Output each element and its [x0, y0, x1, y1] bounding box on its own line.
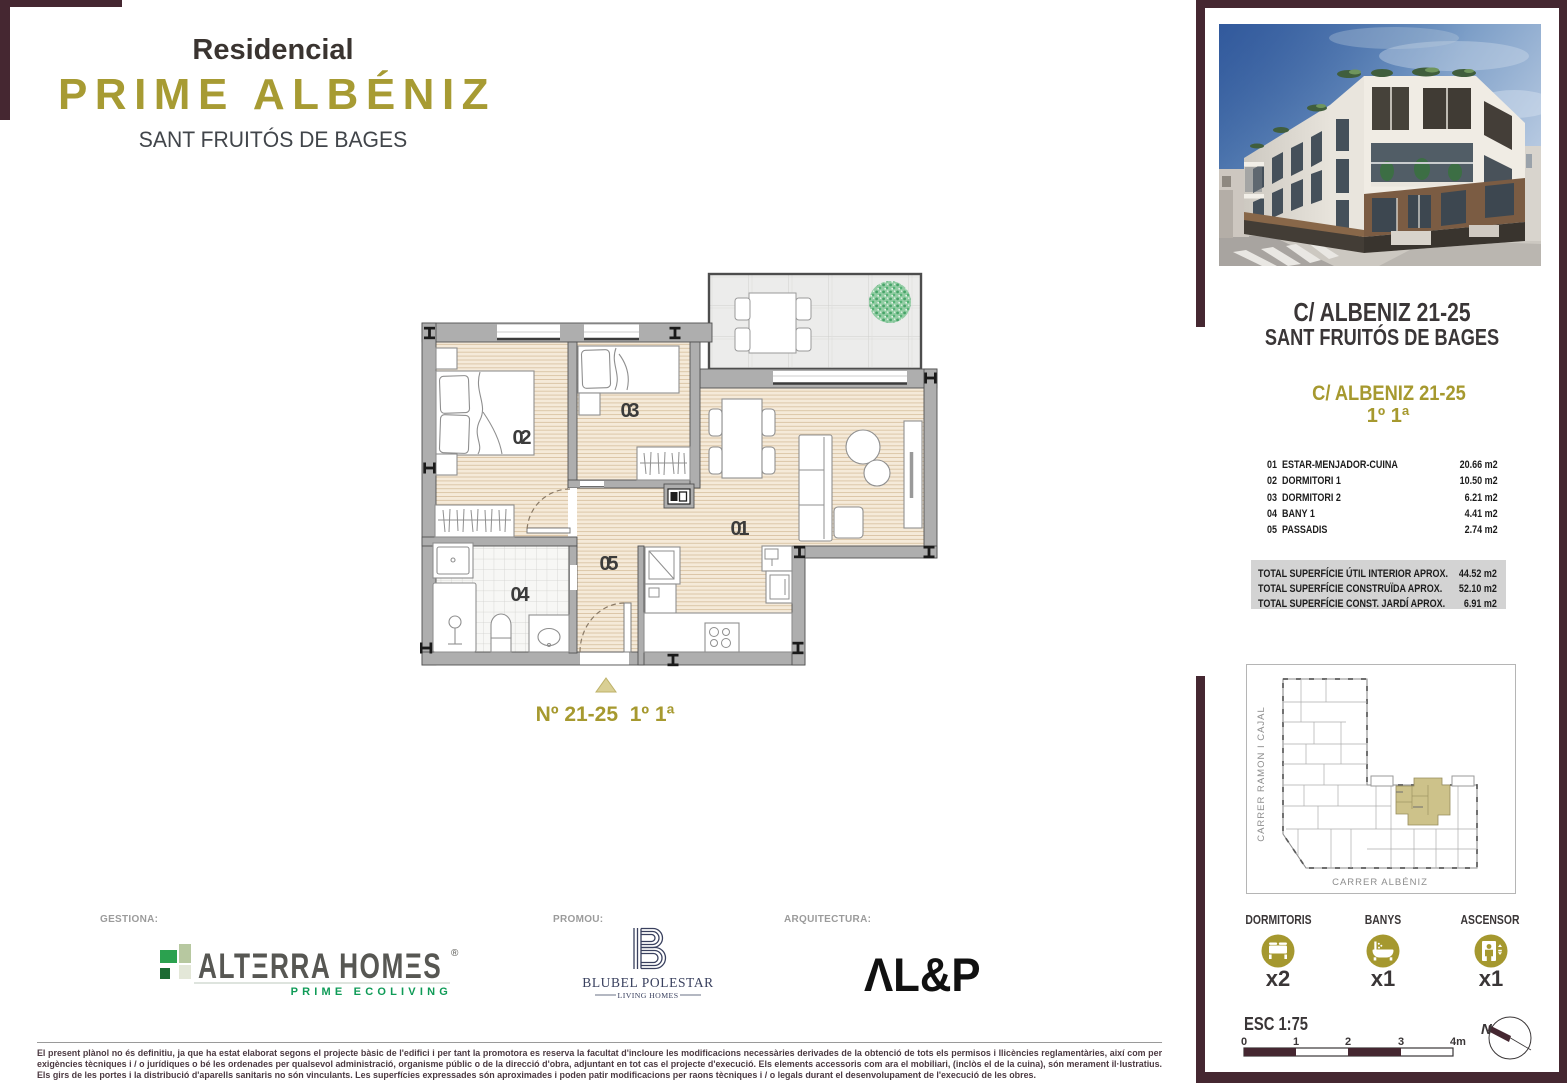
- svg-text:0: 0: [1241, 1036, 1247, 1048]
- svg-text:CARRER ALBÉNIZ: CARRER ALBÉNIZ: [1332, 877, 1428, 888]
- svg-text:1: 1: [1293, 1036, 1299, 1048]
- svg-text:05: 05: [600, 553, 619, 575]
- svg-text:02: 02: [513, 427, 532, 449]
- svg-text:4m: 4m: [1450, 1036, 1466, 1048]
- svg-text:01: 01: [731, 518, 750, 540]
- svg-text:ALTΞRRA HOMΞS: ALTΞRRA HOMΞS: [198, 946, 442, 986]
- svg-text:LIVING HOMES: LIVING HOMES: [618, 991, 679, 1000]
- svg-text:2: 2: [1345, 1036, 1351, 1048]
- svg-text:04: 04: [511, 584, 531, 606]
- svg-text:3: 3: [1398, 1036, 1404, 1048]
- svg-text:CARRER RAMON I CAJAL: CARRER RAMON I CAJAL: [1256, 706, 1267, 842]
- svg-text:PRIME ECOLIVING: PRIME ECOLIVING: [291, 986, 452, 998]
- svg-text:BLUBEL POLESTAR: BLUBEL POLESTAR: [582, 975, 714, 990]
- svg-text:N: N: [1481, 1021, 1493, 1038]
- svg-text:03: 03: [621, 400, 640, 422]
- svg-text:®: ®: [451, 948, 459, 959]
